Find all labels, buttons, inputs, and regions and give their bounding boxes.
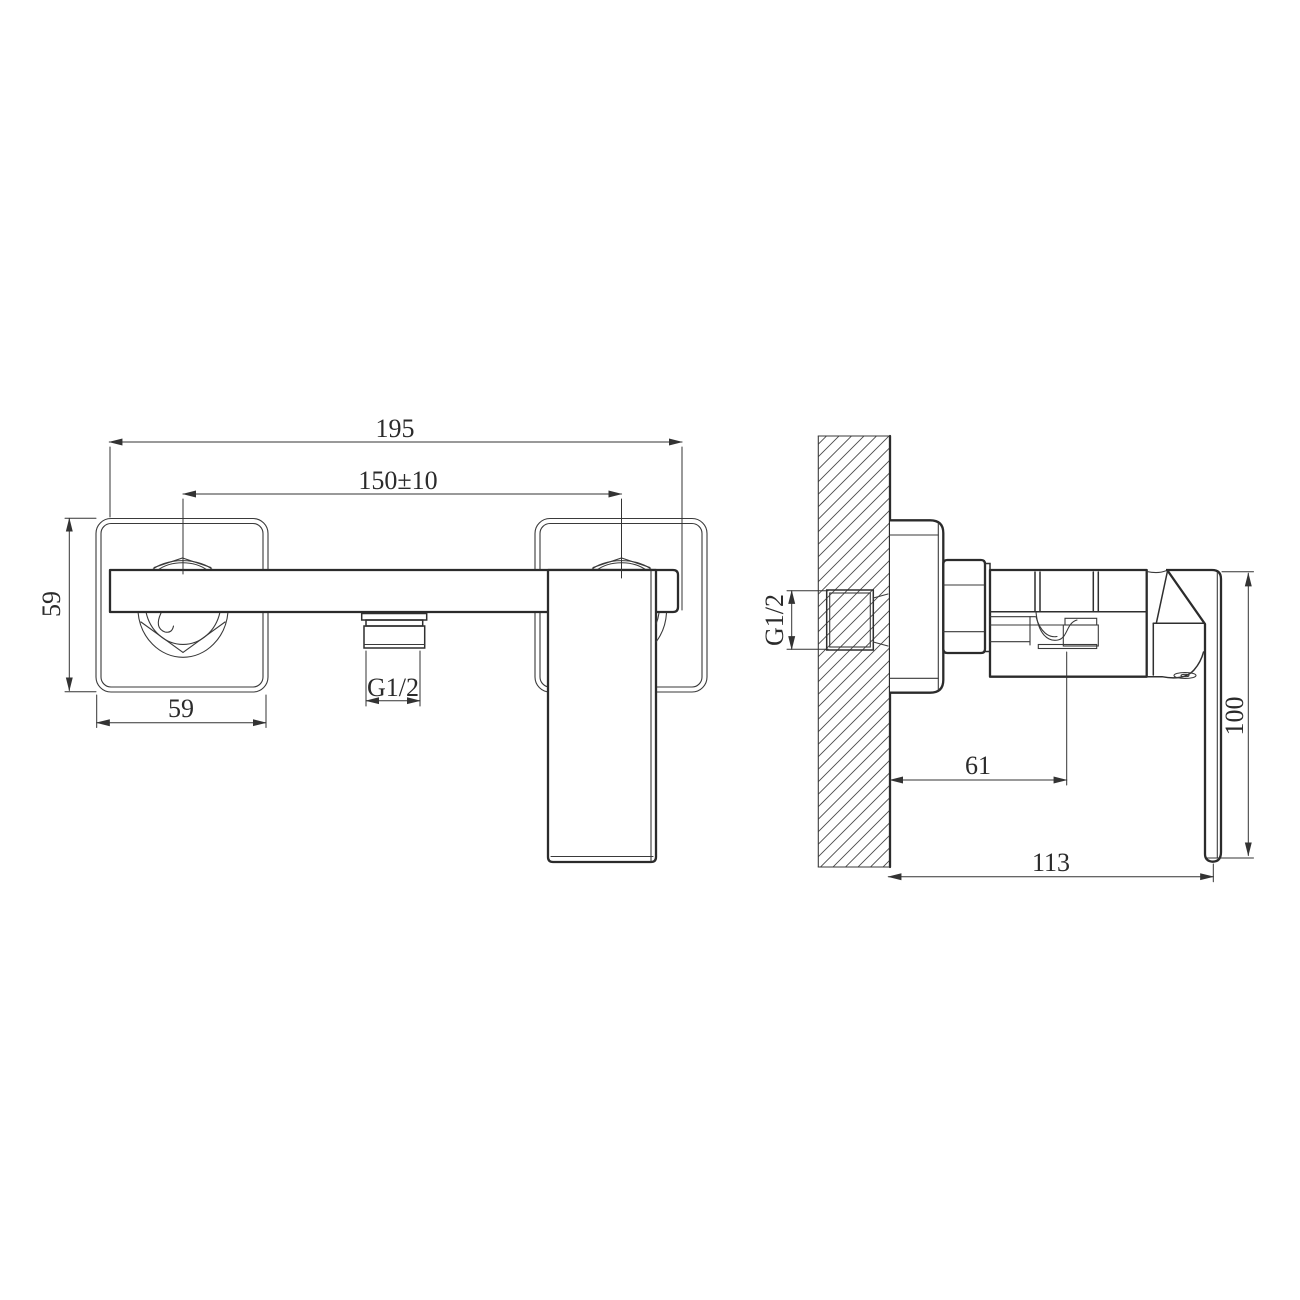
dim-label-outlet-thread-front: G1/2: [367, 673, 419, 702]
dim-outlet-thread-front: G1/2: [366, 651, 420, 706]
hex-nut: [943, 560, 990, 653]
dim-label-inlet-thread: G1/2: [760, 594, 789, 646]
dim-label-plate-width: 59: [168, 694, 194, 723]
dim-label-hole-centers: 150±10: [358, 466, 437, 495]
dim-plate-height: 59: [37, 518, 96, 691]
outlet-port-front: [362, 614, 427, 649]
handle-side: [1147, 570, 1221, 862]
dim-label-total-depth: 113: [1032, 848, 1070, 877]
front-view-group: 195 150±10 59 59 G1/2: [37, 414, 707, 862]
technical-drawing-svg: 195 150±10 59 59 G1/2: [0, 0, 1300, 1300]
drawing-canvas: 195 150±10 59 59 G1/2: [0, 0, 1300, 1300]
dim-label-plate-height: 59: [37, 591, 66, 617]
escutcheon-side: [890, 520, 943, 692]
dim-label-overall-width: 195: [376, 414, 415, 443]
wall-side: [818, 436, 890, 867]
handle-front: [548, 570, 656, 862]
valve-body-side: [990, 570, 1147, 677]
dim-hole-centers: 150±10: [183, 466, 622, 578]
side-view-group: G1/2 61 113 100: [760, 436, 1254, 882]
wall-hatch: [818, 436, 890, 867]
dim-total-depth: 113: [888, 848, 1213, 882]
connector-right-lower-arc: [656, 613, 667, 642]
dim-plate-width: 59: [97, 694, 266, 728]
dim-label-outlet-offset: 61: [965, 751, 991, 780]
dim-label-handle-height: 100: [1220, 697, 1249, 736]
